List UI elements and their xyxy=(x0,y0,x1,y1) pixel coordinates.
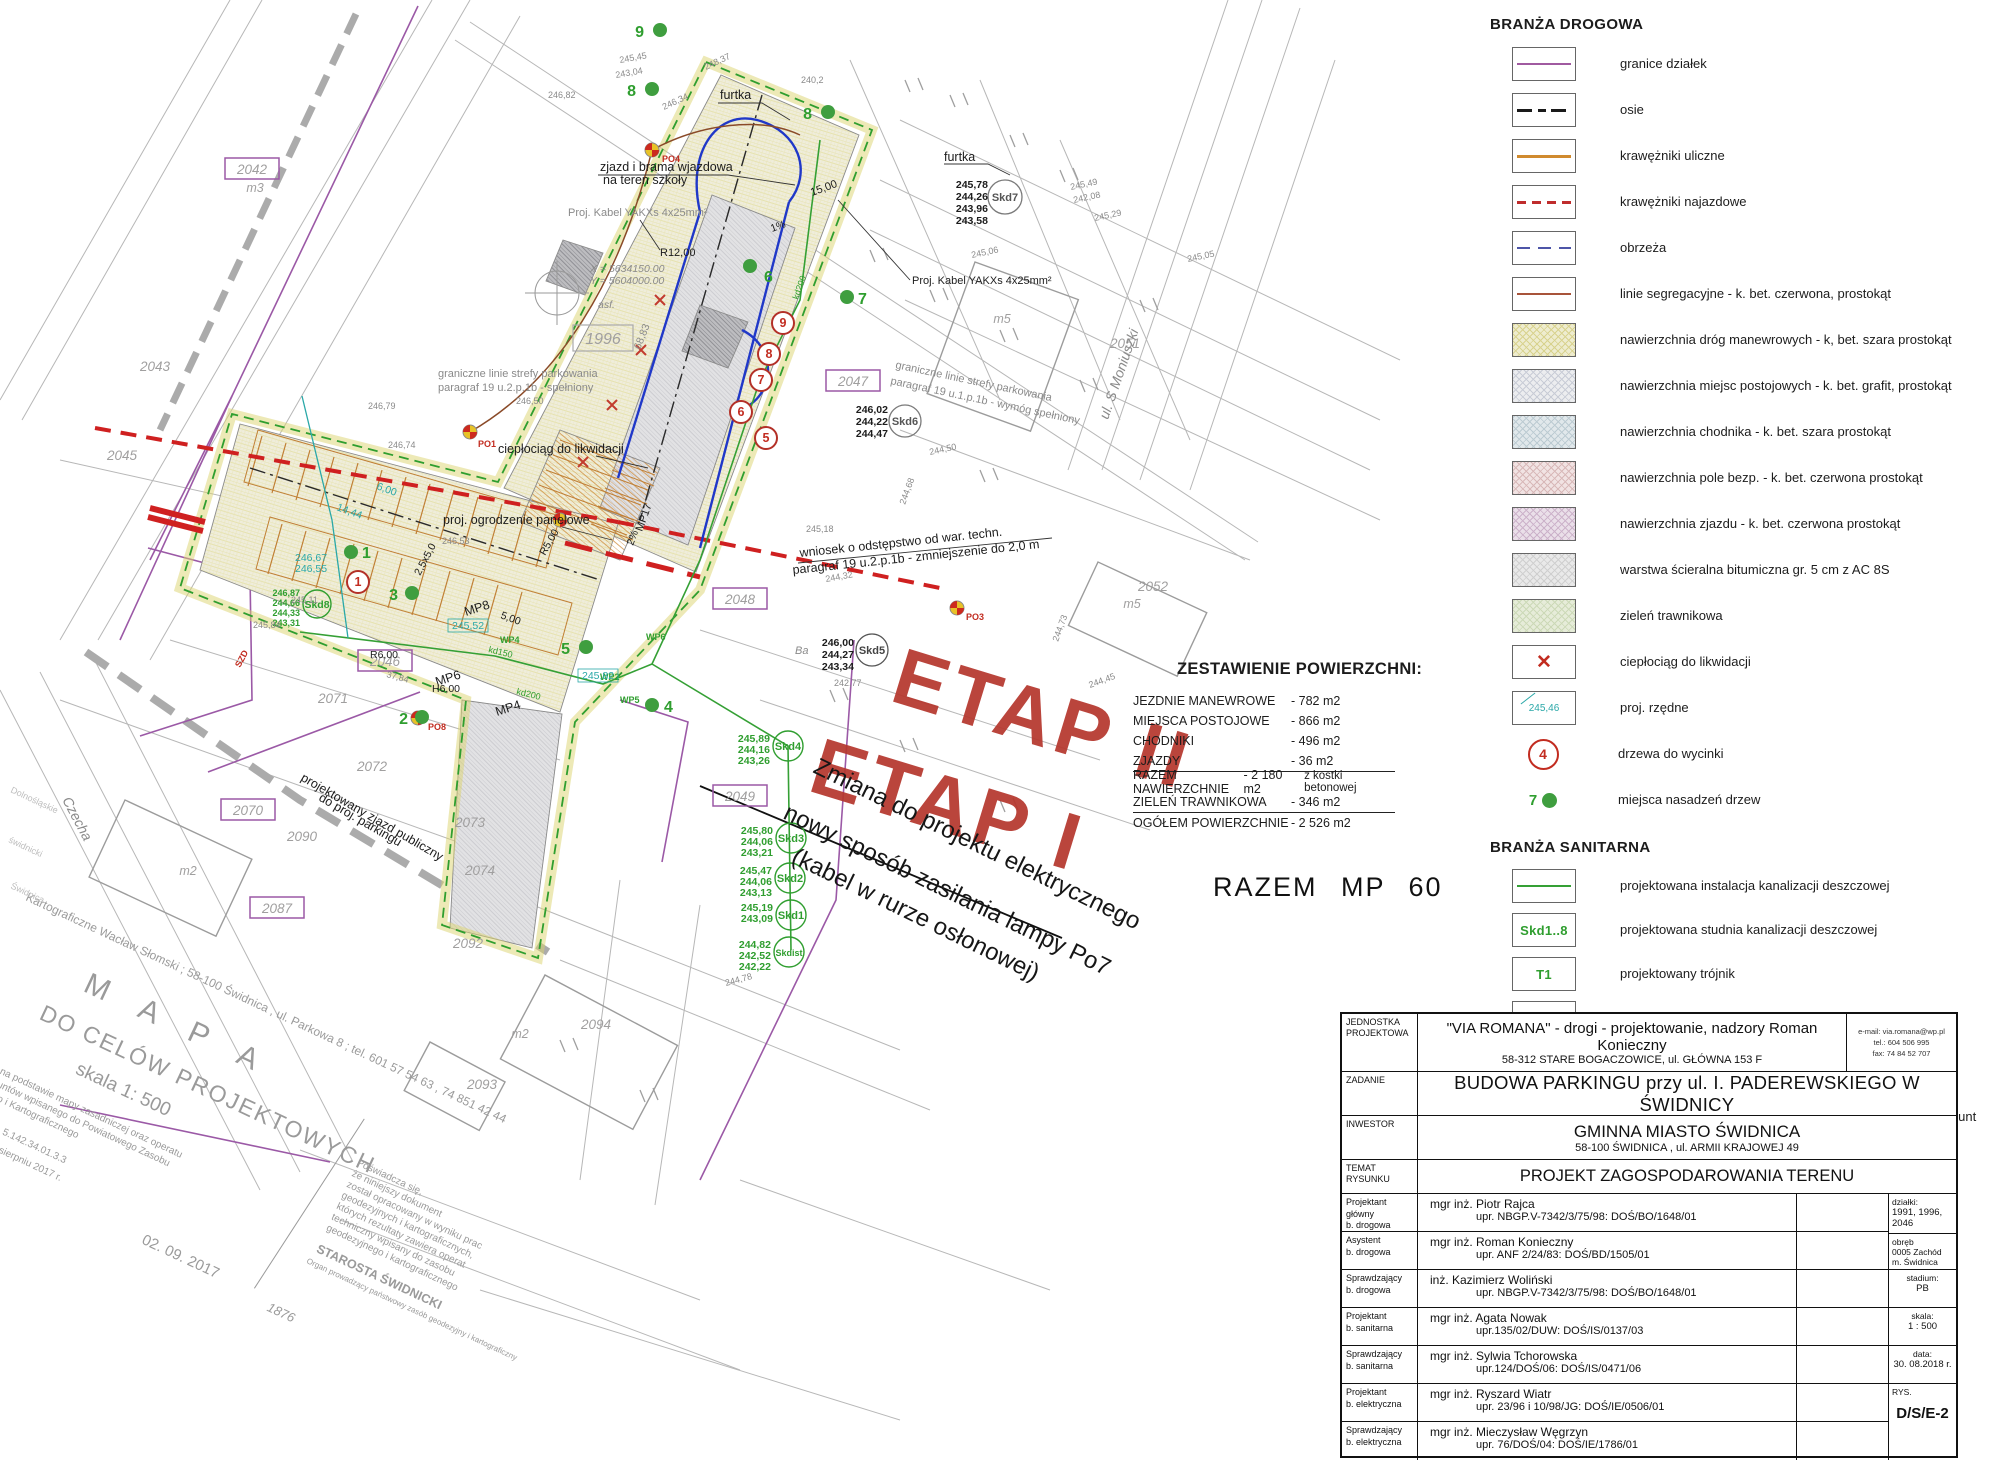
svg-text:245,52: 245,52 xyxy=(452,620,484,632)
svg-text:243,26: 243,26 xyxy=(738,755,770,767)
legend-section-sanitary: BRANŻA SANITARNA xyxy=(1490,839,2000,856)
legend-item-nasadzenia: 7miejsca nasadzeń drzew xyxy=(1488,777,2000,823)
svg-text:244,73: 244,73 xyxy=(1050,613,1069,642)
drawing-subject: PROJEKT ZAGOSPODAROWANIA TERENU xyxy=(1520,1167,1854,1186)
date-cell: data:30. 08.2018 r. xyxy=(1889,1346,1956,1384)
svg-text:243,58: 243,58 xyxy=(956,215,988,227)
stage-cell: stadium:PB xyxy=(1889,1270,1956,1308)
svg-text:2090: 2090 xyxy=(286,829,318,844)
svg-text:projektowany zjazd publiczny: projektowany zjazd publiczny xyxy=(299,770,447,863)
person-row: Sprawdzającyb. sanitarna mgr inż. Sylwia… xyxy=(1342,1346,1888,1384)
svg-text:245,78: 245,78 xyxy=(956,179,988,191)
legend-item-osie: osie xyxy=(1488,87,2000,133)
legend-item-zielen: zieleń trawnikowa xyxy=(1488,593,2000,639)
swatch-curb-line xyxy=(1512,139,1576,173)
svg-text:2093: 2093 xyxy=(466,1077,498,1092)
svg-text:furtka: furtka xyxy=(944,150,975,164)
svg-text:240,2: 240,2 xyxy=(801,75,824,85)
title-block: JEDNOSTKA PROJEKTOWA "VIA ROMANA" - drog… xyxy=(1340,1012,1958,1458)
investor-name: GMINNA MIASTO ŚWIDNICA xyxy=(1574,1122,1800,1142)
skd7: Skd7 245,78 244,26 243,96 243,58 xyxy=(956,179,1022,227)
task-title: BUDOWA PARKINGU przy ul. I. PADEREWSKIEG… xyxy=(1418,1072,1956,1116)
svg-text:245,29: 245,29 xyxy=(1093,207,1122,223)
legend-item-miejsca-postojowe: nawierzchnia miejsc postojowych - k. bet… xyxy=(1488,363,2000,409)
plots-cell: działki:1991, 1996, 2046 xyxy=(1889,1194,1956,1234)
svg-text:Skd6: Skd6 xyxy=(892,416,918,428)
svg-text:Y = 5604000.00: Y = 5604000.00 xyxy=(590,275,664,287)
skd1: Skd1 245,19 243,09 xyxy=(741,900,806,930)
signature-cell xyxy=(1797,1308,1888,1345)
drawing-number-cell: RYS.D/S/E-2 xyxy=(1889,1384,1956,1460)
person-row: Sprawdzającyb. elektryczna mgr inż. Miec… xyxy=(1342,1422,1888,1460)
svg-text:02. 09. 2017: 02. 09. 2017 xyxy=(139,1231,222,1282)
person-row: Projektant głównyb. drogowa mgr inż. Pio… xyxy=(1342,1194,1888,1232)
tree-planting-icon: 7 xyxy=(1512,784,1574,816)
legend-item-zjazd: nawierzchnia zjazdu - k. bet. czerwona p… xyxy=(1488,501,2000,547)
skd5: Skd5 246,00 244,27 243,34 xyxy=(822,634,888,673)
svg-text:246,02: 246,02 xyxy=(856,404,888,416)
svg-text:245,84: 245,84 xyxy=(253,620,281,630)
svg-text:245,06: 245,06 xyxy=(970,244,999,260)
svg-text:243,21: 243,21 xyxy=(741,847,773,859)
title-block-investor-row: INWESTOR GMINNA MIASTO ŚWIDNICA 58-100 Ś… xyxy=(1342,1116,1956,1160)
area-row: JEZDNIE MANEWROWE- 782 m2 xyxy=(1133,691,1483,711)
svg-text:PO8: PO8 xyxy=(428,722,446,732)
area-row: CHODNIKI- 496 m2 xyxy=(1133,731,1483,751)
storm-drain-line xyxy=(1512,869,1576,903)
signature-cell xyxy=(1797,1346,1888,1383)
tree-removal-icon: 4 xyxy=(1512,738,1574,770)
svg-text:244,22: 244,22 xyxy=(856,416,888,428)
person-row: Projektantb. sanitarna mgr inż. Agata No… xyxy=(1342,1308,1888,1346)
svg-text:244,27: 244,27 xyxy=(822,649,854,661)
legend-item-trojnik: T1projektowany trójnik xyxy=(1488,952,2000,996)
svg-text:8: 8 xyxy=(803,106,812,123)
svg-text:242,22: 242,22 xyxy=(739,961,771,973)
swatch-lawn-surface xyxy=(1512,599,1576,633)
svg-text:ciepłociąg do likwidacji: ciepłociąg do likwidacji xyxy=(498,442,624,456)
svg-text:9: 9 xyxy=(780,316,787,330)
svg-text:3: 3 xyxy=(389,587,398,604)
svg-text:Kartograficzne Wacław Słomski: Kartograficzne Wacław Słomski ; 58-100 Ś… xyxy=(24,889,510,1126)
svg-text:8: 8 xyxy=(627,83,636,100)
skdist: Skdist 244,82 242,52 242,22 xyxy=(739,937,804,973)
person-row: Projektantb. elektryczna mgr inż. Ryszar… xyxy=(1342,1384,1888,1422)
signature-cell xyxy=(1797,1270,1888,1307)
svg-text:świdnicki: świdnicki xyxy=(7,835,44,859)
site-plan-sheet: Skd7 245,78 244,26 243,96 243,58 Skd6 24… xyxy=(0,0,2000,1467)
svg-text:246,53: 246,53 xyxy=(442,536,470,546)
svg-text:244,33: 244,33 xyxy=(272,608,300,618)
legend-item-pole-bezp: nawierzchnia pole bezp. - k. bet. czerwo… xyxy=(1488,455,2000,501)
svg-text:246,55: 246,55 xyxy=(295,563,327,575)
svg-text:furtka: furtka xyxy=(720,88,751,102)
legend: BRANŻA DROGOWA granice działek osie kraw… xyxy=(1488,6,2000,1181)
svg-text:2045: 2045 xyxy=(106,448,138,463)
svg-text:245,82: 245,82 xyxy=(582,670,614,682)
svg-text:m5: m5 xyxy=(993,312,1010,326)
swatch-sidewalk-surface xyxy=(1512,415,1576,449)
svg-text:m2: m2 xyxy=(179,864,196,878)
svg-text:PO1: PO1 xyxy=(478,439,496,449)
svg-text:246,50: 246,50 xyxy=(516,396,544,406)
signature-cell xyxy=(1797,1422,1888,1460)
svg-text:WP5: WP5 xyxy=(620,695,640,705)
svg-text:SZD: SZD xyxy=(233,648,251,669)
swatch-maneuver-surface xyxy=(1512,323,1576,357)
district-cell: obręb0005 Zachódm. Świdnica xyxy=(1889,1234,1956,1270)
svg-text:m3: m3 xyxy=(246,181,263,195)
svg-text:243,96: 243,96 xyxy=(956,203,988,215)
person-row: Sprawdzającyb. drogowa inż. Kazimierz Wo… xyxy=(1342,1270,1888,1308)
svg-text:Skd7: Skd7 xyxy=(992,192,1018,204)
svg-text:5: 5 xyxy=(763,431,770,445)
svg-text:246,82: 246,82 xyxy=(548,90,576,100)
svg-text:m2: m2 xyxy=(511,1027,528,1041)
svg-text:Proj. Kabel YAKXs 4x25mm²: Proj. Kabel YAKXs 4x25mm² xyxy=(568,207,708,219)
legend-item-rzedne: 245,46proj. rzędne xyxy=(1488,685,2000,731)
svg-text:X = 5634150.00: X = 5634150.00 xyxy=(589,263,665,275)
svg-text:244,78: 244,78 xyxy=(724,971,753,988)
person-row: Asystentb. drogowa mgr inż. Roman Koniec… xyxy=(1342,1232,1888,1270)
legend-item-chodnik: nawierzchnia chodnika - k. bet. szara pr… xyxy=(1488,409,2000,455)
svg-text:asf.: asf. xyxy=(598,299,615,311)
area-row-grand-total: OGÓŁEM POWIERZCHNIE- 2 526 m2 xyxy=(1133,812,1395,833)
swatch-parcel-line xyxy=(1512,47,1576,81)
swatch-parking-surface xyxy=(1512,369,1576,403)
svg-text:Czecha: Czecha xyxy=(59,794,96,844)
signature-cell xyxy=(1797,1194,1888,1231)
svg-text:4: 4 xyxy=(664,699,673,716)
title-block-task-row: ZADANIE BUDOWA PARKINGU przy ul. I. PADE… xyxy=(1342,1072,1956,1116)
svg-text:1996: 1996 xyxy=(585,331,621,348)
legend-item-drzewa-wycinka: 4drzewa do wycinki xyxy=(1488,731,2000,777)
swatch-separation-line xyxy=(1512,277,1576,311)
manhole-symbol: Skd1..8 xyxy=(1512,913,1576,947)
tee-symbol: T1 xyxy=(1512,957,1576,991)
svg-text:2094: 2094 xyxy=(580,1017,611,1032)
svg-text:244,68: 244,68 xyxy=(897,476,916,505)
svg-text:Skdist: Skdist xyxy=(775,948,802,958)
signature-cell xyxy=(1797,1232,1888,1269)
swatch-axis-line xyxy=(1512,93,1576,127)
svg-text:243,04: 243,04 xyxy=(615,65,644,80)
scale-cell: skala:1 : 500 xyxy=(1889,1308,1956,1346)
svg-text:244,50: 244,50 xyxy=(928,441,957,457)
svg-text:2052: 2052 xyxy=(1137,579,1169,594)
svg-text:244,47: 244,47 xyxy=(856,428,888,440)
svg-text:8: 8 xyxy=(766,347,773,361)
svg-text:243,34: 243,34 xyxy=(822,661,854,673)
svg-text:2048: 2048 xyxy=(724,592,756,607)
area-table-title: ZESTAWIENIE POWIERZCHNI: xyxy=(1177,660,1483,679)
svg-text:246,00: 246,00 xyxy=(822,637,854,649)
svg-text:2072: 2072 xyxy=(356,759,388,774)
title-block-meta-column: działki:1991, 1996, 2046 obręb0005 Zachó… xyxy=(1888,1194,1956,1460)
svg-text:243,13: 243,13 xyxy=(740,887,772,899)
design-unit-address: 58-312 STARE BOGACZOWICE, ul. GŁÓWNA 153… xyxy=(1502,1054,1762,1066)
svg-text:2073: 2073 xyxy=(454,815,486,830)
total-parking-spaces: RAZEM MP 60 xyxy=(1213,872,1443,903)
design-unit-name: "VIA ROMANA" - drogi - projektowanie, na… xyxy=(1418,1020,1846,1054)
svg-text:Skd1: Skd1 xyxy=(778,910,804,922)
surveyor-stamp: Kartograficzne Wacław Słomski ; 58-100 Ś… xyxy=(0,889,609,1417)
legend-item-drogi-manewrowe: nawierzchnia dróg manewrowych - k, bet. … xyxy=(1488,317,2000,363)
svg-text:246,79: 246,79 xyxy=(368,401,396,411)
area-row-total-paved: RAZEM NAWIERZCHNIE- 2 180 m2z kostki bet… xyxy=(1133,771,1395,792)
investor-address: 58-100 ŚWIDNICA , ul. ARMII KRAJOWEJ 49 xyxy=(1575,1142,1799,1154)
svg-text:PO4: PO4 xyxy=(662,154,680,164)
swatch-safety-field-surface xyxy=(1512,461,1576,495)
svg-text:245,05: 245,05 xyxy=(1186,248,1215,264)
swatch-bituminous-surface xyxy=(1512,553,1576,587)
svg-text:R6,00: R6,00 xyxy=(370,649,398,661)
svg-text:246,74: 246,74 xyxy=(388,440,416,450)
svg-text:2049: 2049 xyxy=(724,789,756,804)
legend-item-linie-segregacyjne: linie segregacyjne - k. bet. czerwona, p… xyxy=(1488,271,2000,317)
svg-text:WP4: WP4 xyxy=(500,635,520,645)
elevation-symbol: 245,46 xyxy=(1512,691,1576,725)
svg-text:1: 1 xyxy=(362,545,371,562)
swatch-mountable-curb-line xyxy=(1512,185,1576,219)
legend-section-road: BRANŻA DROGOWA xyxy=(1490,16,2000,33)
svg-text:paragraf 19 u.2.p.1b - spełnio: paragraf 19 u.2.p.1b - spełniony xyxy=(438,382,594,394)
svg-text:Ba: Ba xyxy=(795,645,808,657)
svg-text:R12,00: R12,00 xyxy=(660,247,695,259)
svg-text:2087: 2087 xyxy=(261,901,293,916)
svg-text:Skd5: Skd5 xyxy=(859,645,885,657)
svg-text:2: 2 xyxy=(399,711,408,728)
svg-text:1876: 1876 xyxy=(265,1299,298,1325)
legend-item-krawezniki-najazdowe: krawężniki najazdowe xyxy=(1488,179,2000,225)
svg-text:2047: 2047 xyxy=(837,374,869,389)
signature-cell xyxy=(1797,1384,1888,1421)
svg-text:6: 6 xyxy=(764,269,773,286)
legend-item-krawezniki-uliczne: krawężniki uliczne xyxy=(1488,133,2000,179)
legend-item-kanalizacja: projektowana instalacja kanalizacji desz… xyxy=(1488,864,2000,908)
svg-text:245,18: 245,18 xyxy=(806,524,834,534)
svg-text:245,11: 245,11 xyxy=(291,595,318,605)
svg-text:graniczne linie strefy parkowa: graniczne linie strefy parkowania xyxy=(438,368,598,380)
svg-text:7: 7 xyxy=(758,373,765,387)
unit-contact: e-mail: via.romana@wp.pltel.: 604 506 99… xyxy=(1846,1014,1956,1071)
svg-text:PO3: PO3 xyxy=(966,612,984,622)
svg-text:243,09: 243,09 xyxy=(741,913,773,925)
svg-text:2071: 2071 xyxy=(317,691,348,706)
svg-text:proj. ogrodzenie panelowe: proj. ogrodzenie panelowe xyxy=(443,513,590,527)
area-summary-table: ZESTAWIENIE POWIERZCHNI: JEZDNIE MANEWRO… xyxy=(1133,660,1483,833)
svg-text:Skd2: Skd2 xyxy=(777,873,803,885)
svg-text:1: 1 xyxy=(355,575,362,589)
legend-item-granice: granice działek xyxy=(1488,41,2000,87)
stamp-side-words: Dolnośląskie świdnicki Świdnica xyxy=(7,785,59,905)
skd4: Skd4 245,89 244,16 243,26 xyxy=(738,731,803,767)
svg-text:242,77: 242,77 xyxy=(834,678,862,688)
svg-text:Skd4: Skd4 xyxy=(775,741,802,753)
heatpipe-x-icon: ✕ xyxy=(1512,645,1576,679)
svg-text:7: 7 xyxy=(858,291,867,308)
area-row: MIEJSCA POSTOJOWE- 866 m2 xyxy=(1133,711,1483,731)
title-block-unit-row: JEDNOSTKA PROJEKTOWA "VIA ROMANA" - drog… xyxy=(1342,1014,1956,1072)
svg-text:2043: 2043 xyxy=(139,359,171,374)
legend-item-studnia: Skd1..8projektowana studnia kanalizacji … xyxy=(1488,908,2000,952)
swatch-driveway-surface xyxy=(1512,507,1576,541)
svg-text:9: 9 xyxy=(635,24,644,41)
svg-text:Proj. Kabel YAKXs 4x25mm²: Proj. Kabel YAKXs 4x25mm² xyxy=(912,275,1052,287)
svg-text:m5: m5 xyxy=(1123,597,1140,611)
svg-text:2070: 2070 xyxy=(232,803,264,818)
svg-text:6: 6 xyxy=(738,405,745,419)
site-surfaces xyxy=(200,75,859,948)
swatch-edging-line xyxy=(1512,231,1576,265)
svg-text:na teren szkoły: na teren szkoły xyxy=(603,173,688,187)
svg-text:2092: 2092 xyxy=(452,936,484,951)
legend-item-obrzeza: obrzeża xyxy=(1488,225,2000,271)
svg-text:2074: 2074 xyxy=(464,863,495,878)
title-block-subject-row: TEMAT RYSUNKU PROJEKT ZAGOSPODAROWANIA T… xyxy=(1342,1160,1956,1194)
unit-label: JEDNOSTKA PROJEKTOWA xyxy=(1342,1014,1418,1071)
legend-item-cieplociag: ✕ciepłociąg do likwidacji xyxy=(1488,639,2000,685)
svg-text:245,45: 245,45 xyxy=(619,50,648,65)
svg-text:244,26: 244,26 xyxy=(956,191,988,203)
svg-text:WP6: WP6 xyxy=(646,632,666,642)
svg-text:2042: 2042 xyxy=(236,162,268,177)
svg-text:5: 5 xyxy=(561,641,570,658)
legend-item-bitumiczna: warstwa ścieralna bitumiczna gr. 5 cm z … xyxy=(1488,547,2000,593)
area-row: ZIELEŃ TRAWNIKOWA- 346 m2 xyxy=(1133,792,1483,812)
